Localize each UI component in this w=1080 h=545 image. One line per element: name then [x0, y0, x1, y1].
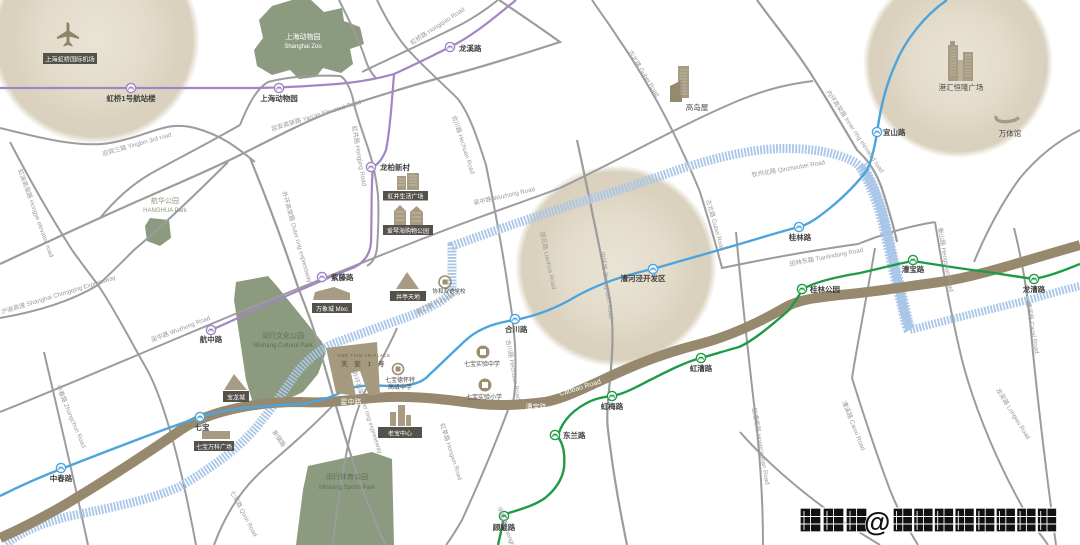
svg-text:上海虹桥国际机场: 上海虹桥国际机场 [45, 56, 95, 64]
svg-text:漕宝路: 漕宝路 [902, 264, 925, 274]
svg-text:合川路: 合川路 [505, 324, 528, 334]
svg-text:闵行体育公园: 闵行体育公园 [326, 472, 368, 481]
svg-text:万象城 Mixc: 万象城 Mixc [316, 305, 348, 313]
svg-text:漕宝路: 漕宝路 [526, 402, 547, 411]
svg-text:航中路: 航中路 [200, 334, 223, 344]
svg-text:@: @ [864, 507, 890, 537]
svg-text:HANGHUA Park: HANGHUA Park [143, 208, 188, 214]
svg-text:万体馆: 万体馆 [999, 128, 1022, 138]
svg-text:高岛屋: 高岛屋 [686, 102, 709, 112]
svg-text:上海动物园: 上海动物园 [260, 93, 298, 103]
svg-text:Minhang Sports Park: Minhang Sports Park [319, 485, 376, 491]
svg-text:爱琴海购物公园: 爱琴海购物公园 [387, 227, 429, 235]
svg-text:虹梅路: 虹梅路 [601, 401, 624, 411]
svg-text:紫藤路: 紫藤路 [331, 272, 354, 282]
svg-text:龙漕路: 龙漕路 [1023, 284, 1046, 294]
svg-text:航华公园: 航华公园 [151, 196, 179, 205]
svg-text:高级中学: 高级中学 [388, 383, 412, 391]
svg-text:漕河泾开发区: 漕河泾开发区 [621, 273, 666, 283]
svg-text:ONE TIAN AN PLACE: ONE TIAN AN PLACE [337, 353, 390, 358]
svg-text:七宝实验小学: 七宝实验小学 [466, 393, 502, 401]
svg-text:宝龙城: 宝龙城 [227, 394, 245, 402]
svg-text:天 安 1 号: 天 安 1 号 [341, 359, 387, 368]
svg-text:东兰路: 东兰路 [563, 430, 586, 440]
svg-text:桂林路: 桂林路 [788, 232, 812, 242]
svg-text:七宝德怀特: 七宝德怀特 [385, 376, 415, 384]
svg-text:虹井生活广场: 虹井生活广场 [387, 193, 423, 201]
svg-text:老宝中心: 老宝中心 [388, 430, 412, 438]
svg-text:虹漕路: 虹漕路 [690, 363, 713, 373]
svg-text:中春路: 中春路 [50, 473, 73, 483]
svg-text:上海动物园: 上海动物园 [286, 32, 321, 41]
svg-text:七宝实验中学: 七宝实验中学 [464, 360, 500, 368]
svg-text:Shanghai Zoo: Shanghai Zoo [284, 44, 322, 50]
svg-text:桂林公园: 桂林公园 [809, 284, 840, 294]
svg-text:龙柏新村: 龙柏新村 [380, 162, 410, 172]
svg-text:七宝万科广场: 七宝万科广场 [196, 443, 232, 451]
svg-text:星中路: 星中路 [341, 397, 362, 406]
svg-text:七宝: 七宝 [195, 422, 210, 432]
svg-text:虹桥1号航站楼: 虹桥1号航站楼 [106, 93, 156, 103]
svg-text:Minhang Cultural Park: Minhang Cultural Park [253, 343, 313, 349]
svg-text:井亭天地: 井亭天地 [396, 293, 420, 301]
svg-text:闵行文化公园: 闵行文化公园 [262, 331, 304, 340]
svg-text:宜山路: 宜山路 [883, 127, 906, 137]
svg-text:港汇恒隆广场: 港汇恒隆广场 [939, 82, 984, 92]
svg-text:龙溪路: 龙溪路 [459, 43, 482, 53]
